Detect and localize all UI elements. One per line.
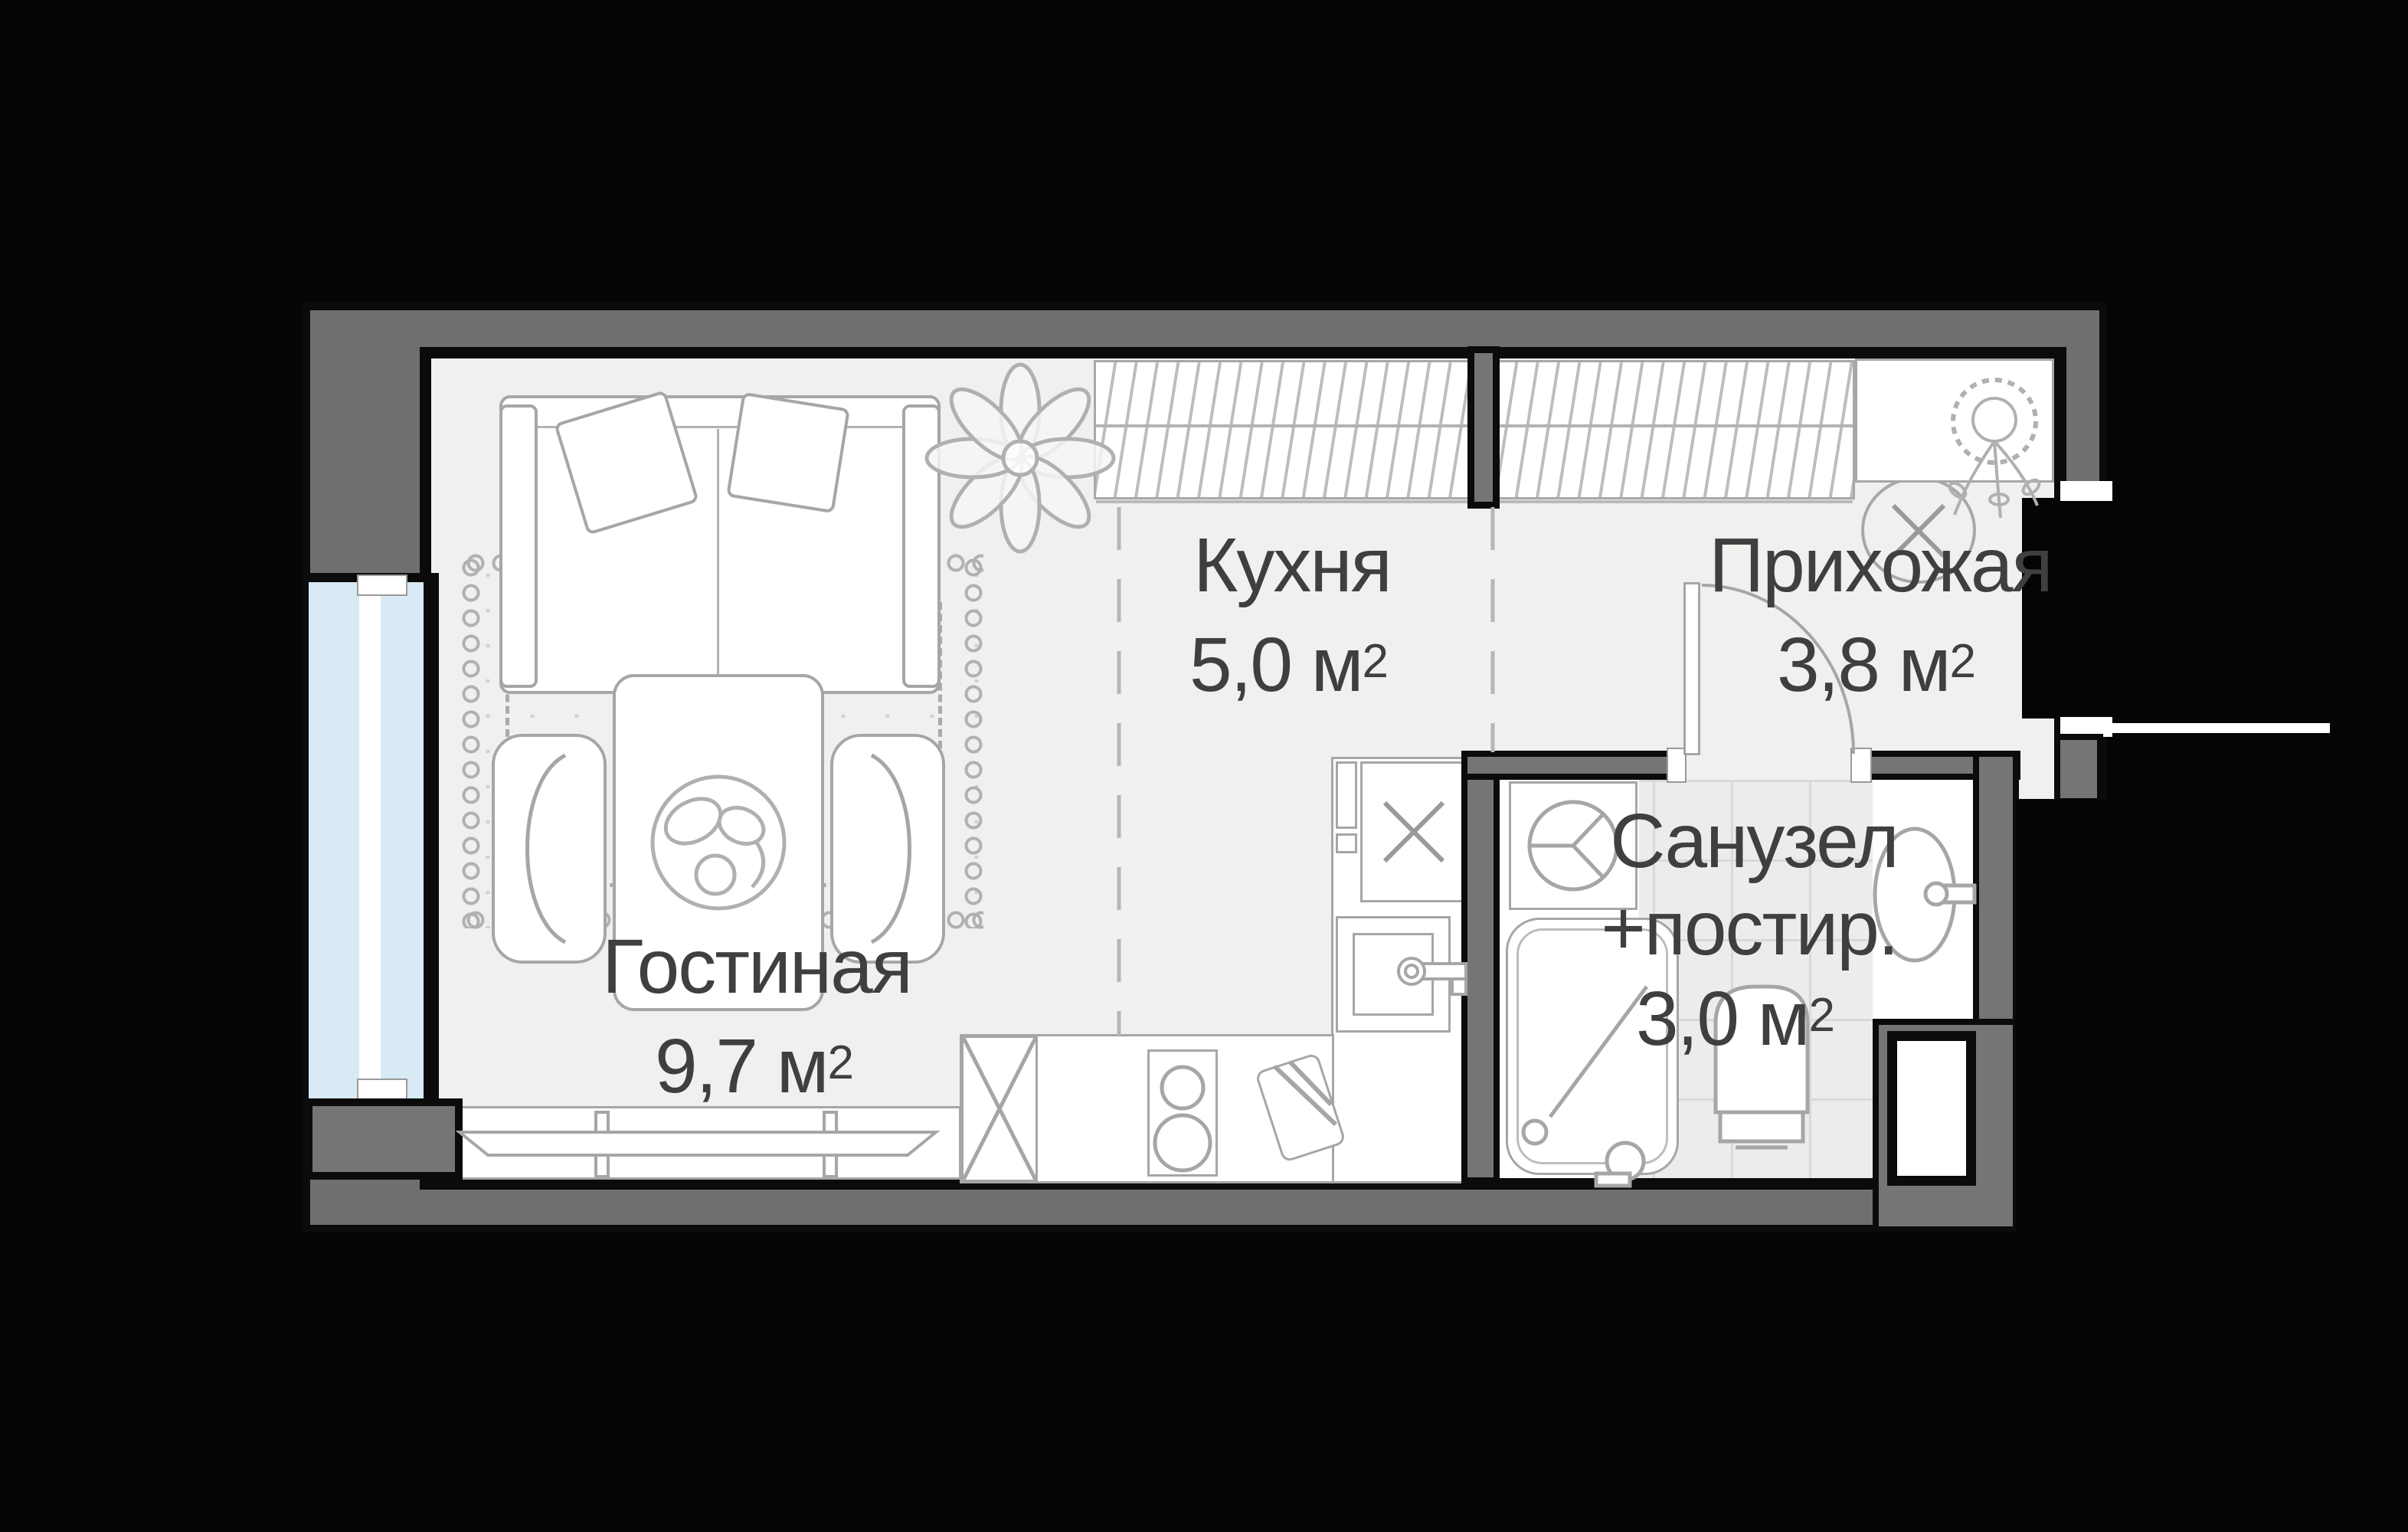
window-pane-inner xyxy=(381,582,424,1100)
door-jamb xyxy=(1850,748,1872,783)
area-sup: 2 xyxy=(1809,989,1835,1042)
tv-stand-icon xyxy=(433,1106,961,1180)
exterior-cutout xyxy=(2016,799,2154,1233)
sofa-armrest-right xyxy=(902,404,941,688)
rug-border-left xyxy=(461,558,481,928)
room-label-bath-2: +постир. xyxy=(1601,890,1897,967)
room-label-living: Гостиная xyxy=(602,928,911,1005)
wardrobe-icon xyxy=(1495,360,1855,499)
window-mullion xyxy=(359,582,381,1100)
kitchen-sink-basin xyxy=(1353,933,1434,1016)
room-area-bath: 3,0 м2 xyxy=(1636,980,1835,1057)
area-value: 5,0 м xyxy=(1189,622,1363,708)
pillow-icon xyxy=(726,392,850,514)
vent-cross-icon xyxy=(1360,761,1466,902)
corner-wall-block xyxy=(305,1098,463,1180)
window-cap-top xyxy=(357,574,407,596)
fridge-cross-icon xyxy=(961,1036,1038,1182)
room-label-bath: Санузел xyxy=(1610,803,1898,879)
area-sup: 2 xyxy=(1950,635,1976,688)
room-area-living: 9,7 м2 xyxy=(655,1028,854,1105)
counter-slim-cabinet xyxy=(1336,833,1357,853)
window-cap-bottom xyxy=(357,1079,407,1100)
sofa-armrest-left xyxy=(499,404,538,688)
area-value: 3,8 м xyxy=(1777,622,1950,708)
wardrobe-edge xyxy=(1497,500,1853,503)
room-area-hall: 3,8 м2 xyxy=(1777,627,1976,703)
room-area-kitchen: 5,0 м2 xyxy=(1189,627,1389,703)
room-label-kitchen: Кухня xyxy=(1193,527,1391,604)
shelf-icon xyxy=(1855,358,2054,483)
chair-icon xyxy=(492,734,607,964)
wall-stub xyxy=(1467,346,1500,509)
floor-plan-stage: Гостиная 9,7 м2 Кухня 5,0 м2 Прихожая 3,… xyxy=(0,0,2408,1532)
area-sup: 2 xyxy=(828,1036,854,1089)
bathroom-wall-top-left xyxy=(1461,751,1685,780)
area-value: 9,7 м xyxy=(655,1023,828,1109)
entrance-jamb-top xyxy=(2060,481,2112,501)
counter-slim-cabinet xyxy=(1336,761,1357,829)
window-pane-outer xyxy=(309,582,359,1100)
duct-icon xyxy=(1887,1031,1976,1186)
area-value: 3,0 м xyxy=(1636,976,1809,1062)
sofa-seat-split xyxy=(717,429,719,689)
area-sup: 2 xyxy=(1363,635,1389,688)
room-label-hall: Прихожая xyxy=(1709,527,2051,604)
door-leaf xyxy=(1683,582,1700,755)
wardrobe-icon xyxy=(1094,360,1472,499)
stove-icon xyxy=(1147,1049,1218,1177)
bathroom-wall-left xyxy=(1461,751,1500,1183)
rug-border-right xyxy=(964,558,983,928)
corridor-wall-line xyxy=(2112,723,2330,733)
wardrobe-edge xyxy=(1096,500,1470,503)
wall-step xyxy=(2054,734,2103,804)
